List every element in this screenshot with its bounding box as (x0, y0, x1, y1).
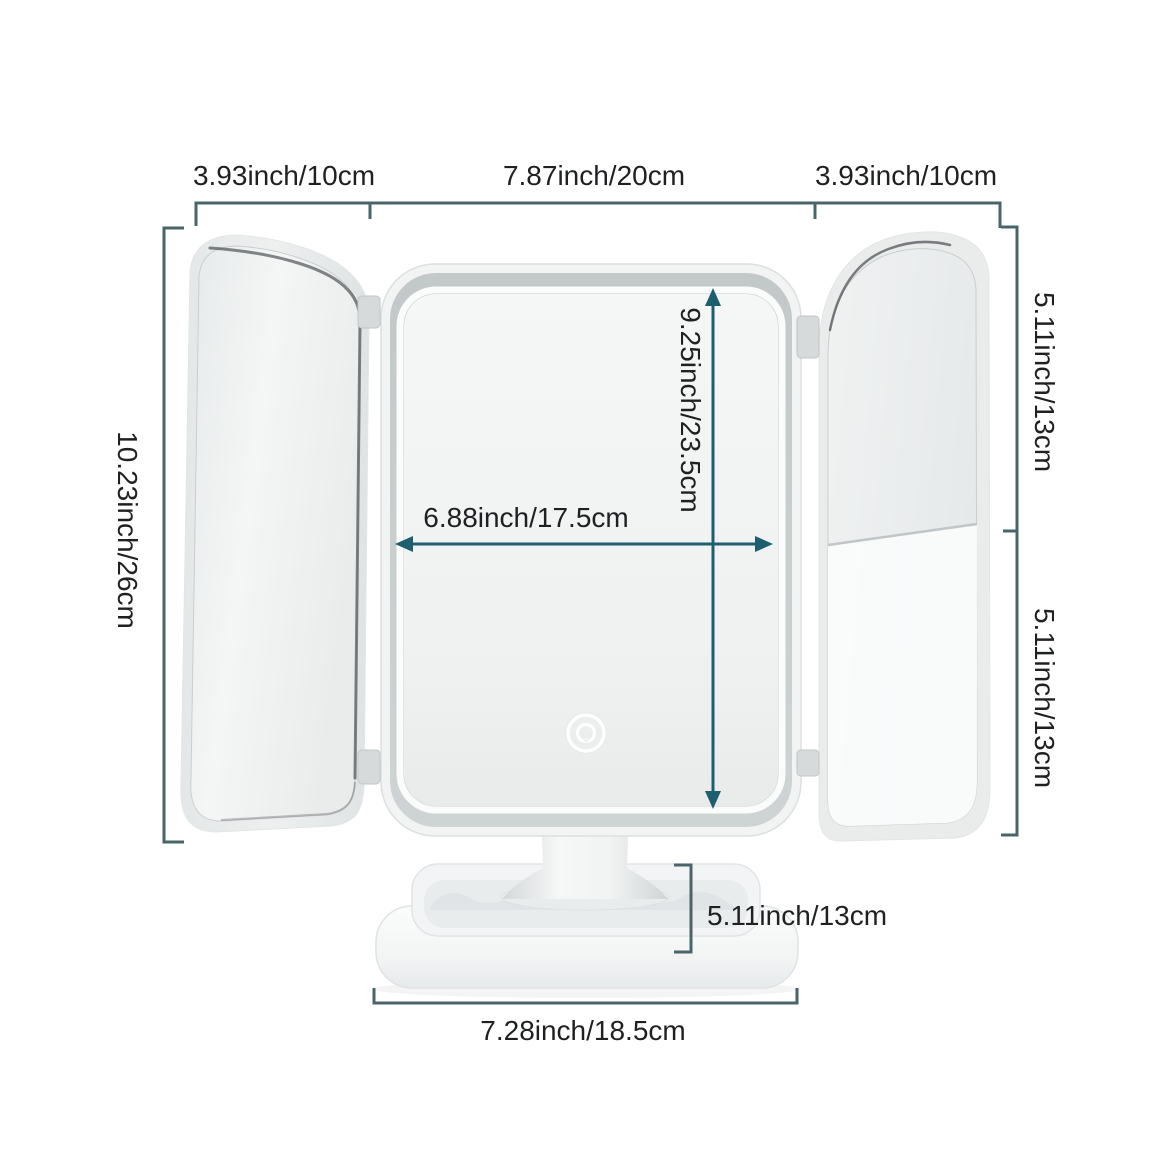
left-height-bracket (164, 228, 184, 842)
dim-label-top-left-panel-width: 3.93inch/10cm (193, 162, 375, 190)
right-panel-lower-mirror (828, 525, 977, 826)
dimension-diagram: 3.93inch/10cm 7.87inch/20cm 3.93inch/10c… (0, 0, 1170, 1164)
dim-label-right-lower-height: 5.11inch/13cm (1030, 608, 1058, 788)
dim-label-overall-height: 10.23inch/26cm (113, 431, 141, 629)
hinge-left-top (358, 296, 380, 328)
product-trifold-mirror (181, 232, 990, 998)
left-panel-mirror (191, 246, 360, 821)
hinge-right-bottom (797, 750, 819, 776)
center-mirror-face (404, 294, 778, 806)
top-dimension-line (196, 203, 1000, 228)
dim-label-right-upper-height: 5.11inch/13cm (1030, 292, 1058, 472)
hinge-right-top (797, 316, 819, 358)
dim-label-base-width: 7.28inch/18.5cm (480, 1017, 685, 1045)
dim-label-top-center-width: 7.87inch/20cm (503, 162, 685, 190)
dim-label-top-right-panel-width: 3.93inch/10cm (815, 162, 997, 190)
dim-label-mirror-height: 9.25inch/23.5cm (676, 307, 704, 512)
hinge-left-bottom (358, 750, 380, 784)
dim-label-mirror-width: 6.88inch/17.5cm (423, 504, 628, 532)
dim-label-base-height: 5.11inch/13cm (707, 902, 887, 930)
